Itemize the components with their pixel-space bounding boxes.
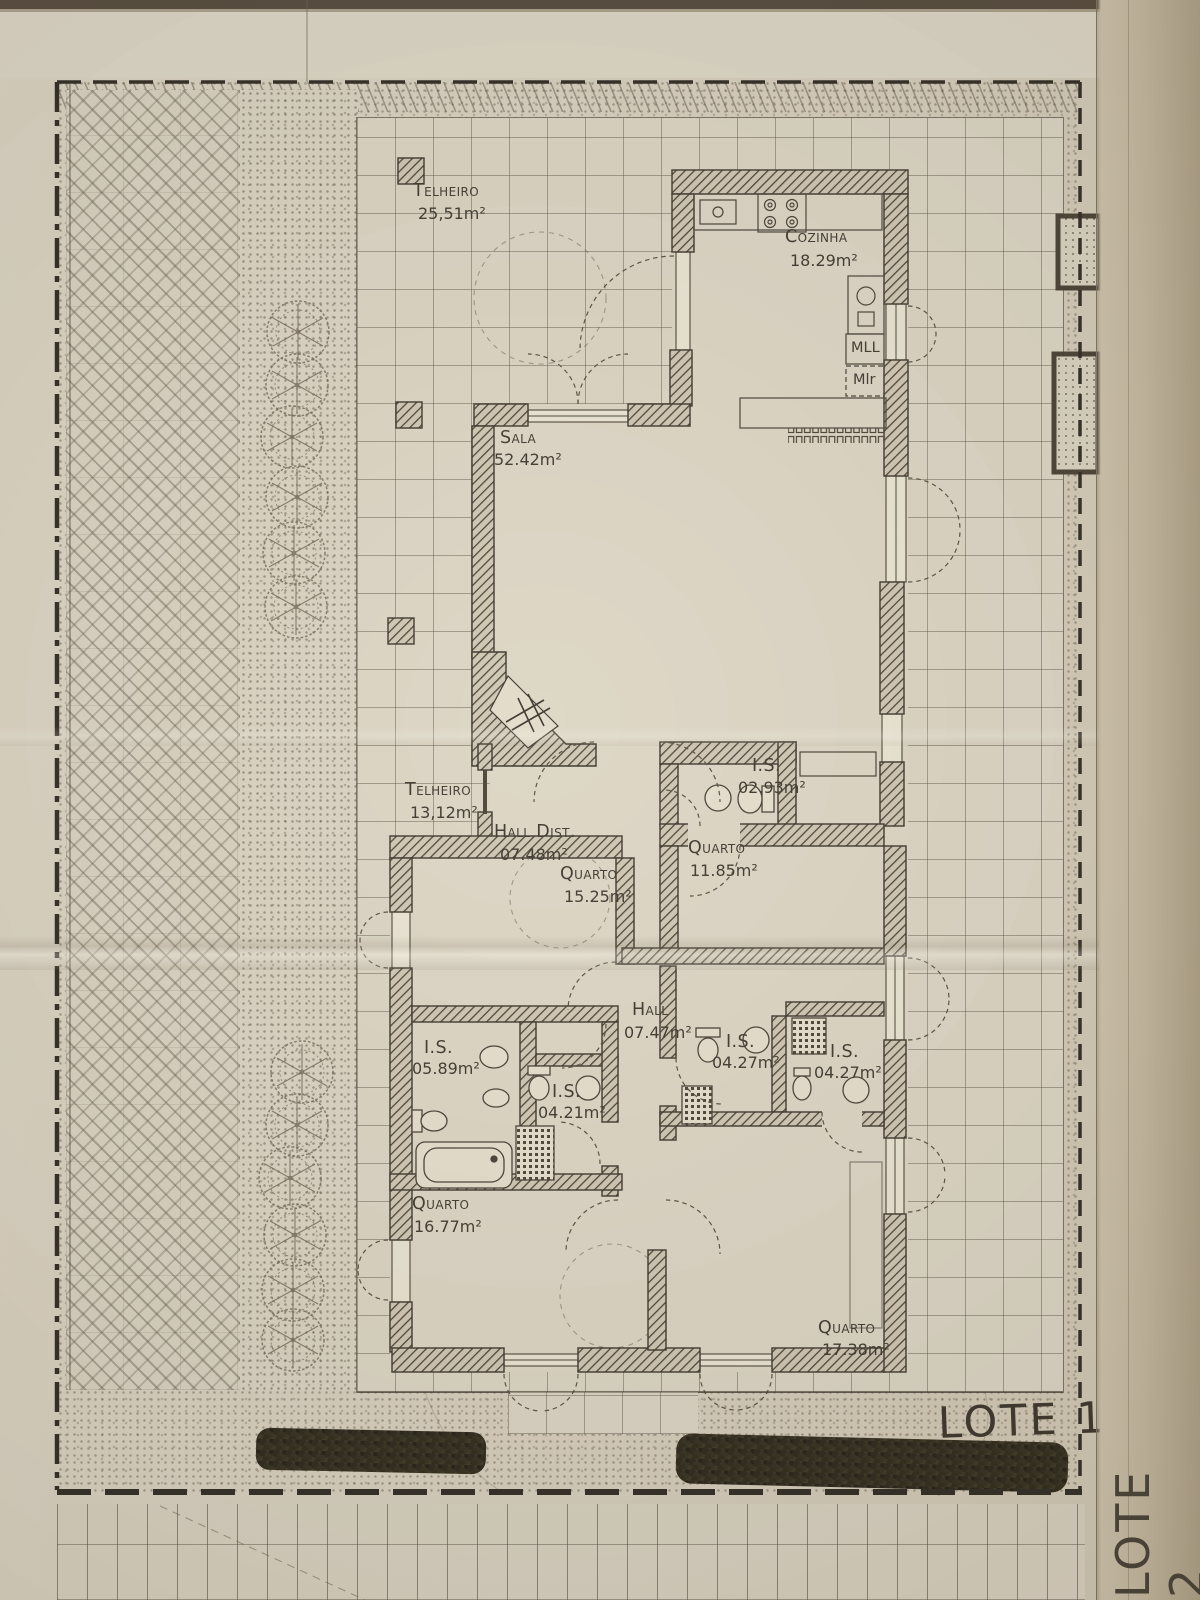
- label-quarto3-name: Quarto: [412, 1196, 469, 1214]
- label-telheiro-top-name: Telheiro: [413, 183, 479, 201]
- bathtub-icon: [416, 1142, 512, 1188]
- label-hall-dist-name: Hall Dist.: [494, 824, 576, 842]
- label-cozinha-area: 18.29m²: [790, 253, 858, 269]
- label-sala-area: 52.42m²: [494, 452, 562, 468]
- toilet-icon: [529, 1076, 549, 1100]
- label-is2-name: I.S.: [424, 1040, 453, 1058]
- label-cozinha-name: Cozinha: [785, 229, 847, 247]
- floor-plan-linework: [0, 0, 1200, 1600]
- label-is1-name: I.S.: [752, 758, 781, 776]
- label-quarto1-area: 15.25m²: [564, 889, 632, 905]
- label-is3-area: 04.21m²: [538, 1105, 606, 1121]
- label-quarto2-area: 11.85m²: [690, 863, 758, 879]
- label-is5-name: I.S.: [830, 1044, 859, 1062]
- paper-fold-horizontal-2: [0, 726, 1100, 746]
- label-mll: MLL: [851, 341, 880, 356]
- label-is1-area: 02.93m²: [738, 780, 806, 796]
- toilet-icon: [793, 1076, 811, 1100]
- shower-icon: [516, 1126, 554, 1180]
- label-quarto4-name: Quarto: [818, 1320, 875, 1338]
- label-mlr: Mlr: [853, 373, 876, 388]
- paper-fold-right: [1096, 0, 1200, 1600]
- toilet-icon: [421, 1111, 447, 1131]
- label-quarto2-name: Quarto: [688, 840, 745, 858]
- trees: [259, 301, 333, 1371]
- label-is2-area: 05.89m²: [412, 1061, 480, 1077]
- label-is4-area: 04.27m²: [712, 1055, 780, 1071]
- label-telheiro-side-area: 13,12m²: [410, 805, 478, 821]
- label-lote1: LOTE 1: [937, 1393, 1107, 1449]
- label-hall-dist-area: 07.48m²: [500, 847, 568, 863]
- shower-icon: [792, 1018, 826, 1054]
- room-floors: [390, 170, 908, 1372]
- paper-fold-right-line: [1128, 0, 1129, 1600]
- label-telheiro-side-name: Telheiro: [405, 782, 471, 800]
- sink-icon: [705, 785, 731, 811]
- label-is3-name: I.S.: [552, 1084, 581, 1102]
- paper-fold-horizontal: [0, 936, 1200, 970]
- boundary-planters: [1054, 216, 1100, 472]
- dish-rack-row: [788, 428, 886, 443]
- label-quarto1-name: Quarto: [560, 866, 617, 884]
- label-quarto4-area: 17.38m²: [822, 1342, 890, 1358]
- label-hall-name: Hall: [632, 1002, 668, 1020]
- label-lote2: LOTE 2: [1106, 1469, 1200, 1598]
- porch-divider-wall: [483, 770, 487, 814]
- sink-icon: [480, 1046, 508, 1068]
- label-hall-area: 07.47m²: [624, 1025, 692, 1041]
- site-plan-photo: Telheiro 25,51m² Cozinha 18.29m² Sala 52…: [0, 0, 1200, 1600]
- shower-icon: [682, 1086, 712, 1124]
- label-is4-name: I.S.: [726, 1034, 755, 1052]
- label-quarto3-area: 16.77m²: [414, 1219, 482, 1235]
- bidet-icon: [483, 1089, 509, 1107]
- label-telheiro-top-area: 25,51m²: [418, 206, 486, 222]
- label-is5-area: 04.27m²: [814, 1065, 882, 1081]
- label-sala-name: Sala: [500, 430, 536, 448]
